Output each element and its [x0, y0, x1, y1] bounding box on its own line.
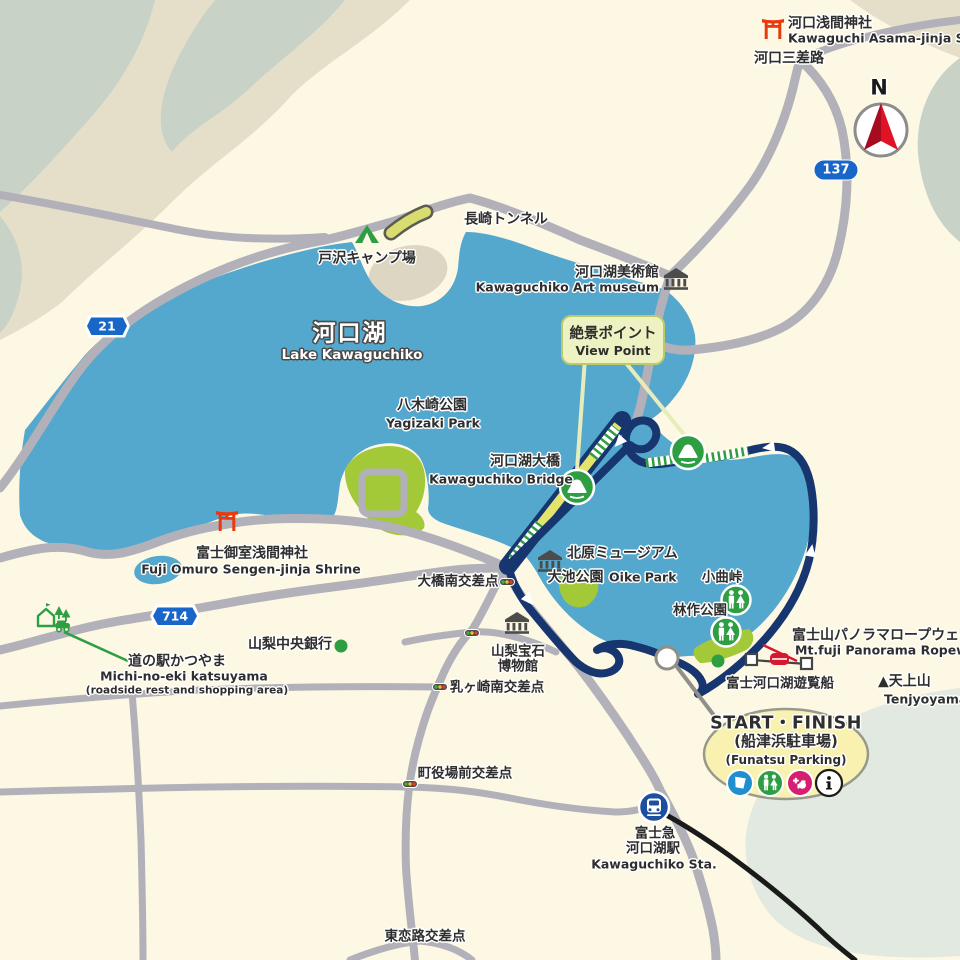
poi-dot	[712, 655, 725, 668]
viewpoint-callout-jp: 絶景ポイント	[570, 322, 657, 343]
label-yamanashi-bank: 山梨中央銀行	[248, 635, 332, 654]
course-map: 河口浅間神社 Kawaguchi Asama-jinja Shrine 河口三差…	[0, 0, 960, 960]
label-gem-museum-l2: 博物館	[498, 657, 539, 676]
viewpoint-callout: 絶景ポイント View Point	[561, 315, 665, 365]
water-station-icon	[727, 770, 753, 796]
compass-north-label: N	[870, 76, 888, 101]
label-art-museum-en: Kawaguchiko Art museum	[476, 278, 659, 297]
start-finish-en: (Funatsu Parking)	[725, 753, 846, 767]
first-aid-icon	[787, 770, 813, 796]
toilet-icon	[712, 618, 741, 647]
viewpoint-icon	[671, 435, 705, 469]
label-yagizaki-jp: 八木崎公園	[397, 396, 467, 415]
start-finish-jp: (船津浜駐車場)	[734, 733, 838, 751]
label-lake-jp: 河口湖	[313, 320, 388, 347]
label-tenjyoyama-jp: ▲天上山	[878, 672, 931, 691]
info-icon	[816, 770, 842, 796]
label-oike-park: 大池公園 Oike Park	[547, 568, 676, 587]
label-ohashi-minami: 大橋南交差点	[418, 572, 499, 591]
label-tenjyoyama-en: Tenjyoyama	[884, 690, 960, 709]
route-badge-21: 21	[84, 315, 130, 338]
label-tozawa-camp: 戸沢キャンプ場	[318, 249, 416, 268]
label-ropeway-en: Mt.fuji Panorama Ropeway	[795, 641, 960, 660]
start-point-marker	[656, 647, 678, 669]
label-asama-shrine-en: Kawaguchi Asama-jinja Shrine	[788, 29, 960, 48]
label-yagizaki-en: Yagizaki Park	[386, 414, 480, 433]
poi-dot	[335, 640, 348, 653]
label-komagari-pass: 小曲峠	[702, 568, 743, 587]
label-michinoeki-note: (roadside rest and shopping area)	[86, 680, 288, 699]
label-rinsaku-park: 林作公園	[673, 601, 727, 620]
label-kawaguchi-sansaro: 河口三差路	[754, 49, 824, 68]
label-higashi-koiji: 東恋路交差点	[385, 927, 466, 946]
route-badge-137: 137	[814, 160, 859, 181]
route-badge-714: 714	[150, 605, 200, 628]
label-station-en: Kawaguchiko Sta.	[591, 855, 717, 874]
label-kitahara-museum: 北原ミュージアム	[567, 544, 678, 563]
label-lake-en: Lake Kawaguchiko	[282, 348, 423, 364]
label-bridge-en: Kawaguchiko Bridge	[429, 470, 573, 489]
label-chichigasaki-minami: 乳ヶ崎南交差点	[450, 678, 545, 697]
label-omuro-en: Fuji Omuro Sengen-jinja Shrine	[141, 560, 361, 579]
label-bridge-jp: 河口湖大橋	[490, 452, 560, 471]
label-nagasaki-tunnel: 長崎トンネル	[464, 210, 548, 229]
compass-icon	[855, 103, 907, 156]
viewpoint-callout-en: View Point	[575, 343, 650, 358]
toilet-icon	[757, 770, 783, 796]
train-station-icon	[639, 792, 669, 822]
label-pleasure-boat: 富士河口湖遊覧船	[726, 674, 834, 693]
label-machiyakuba-mae: 町役場前交差点	[418, 764, 513, 783]
